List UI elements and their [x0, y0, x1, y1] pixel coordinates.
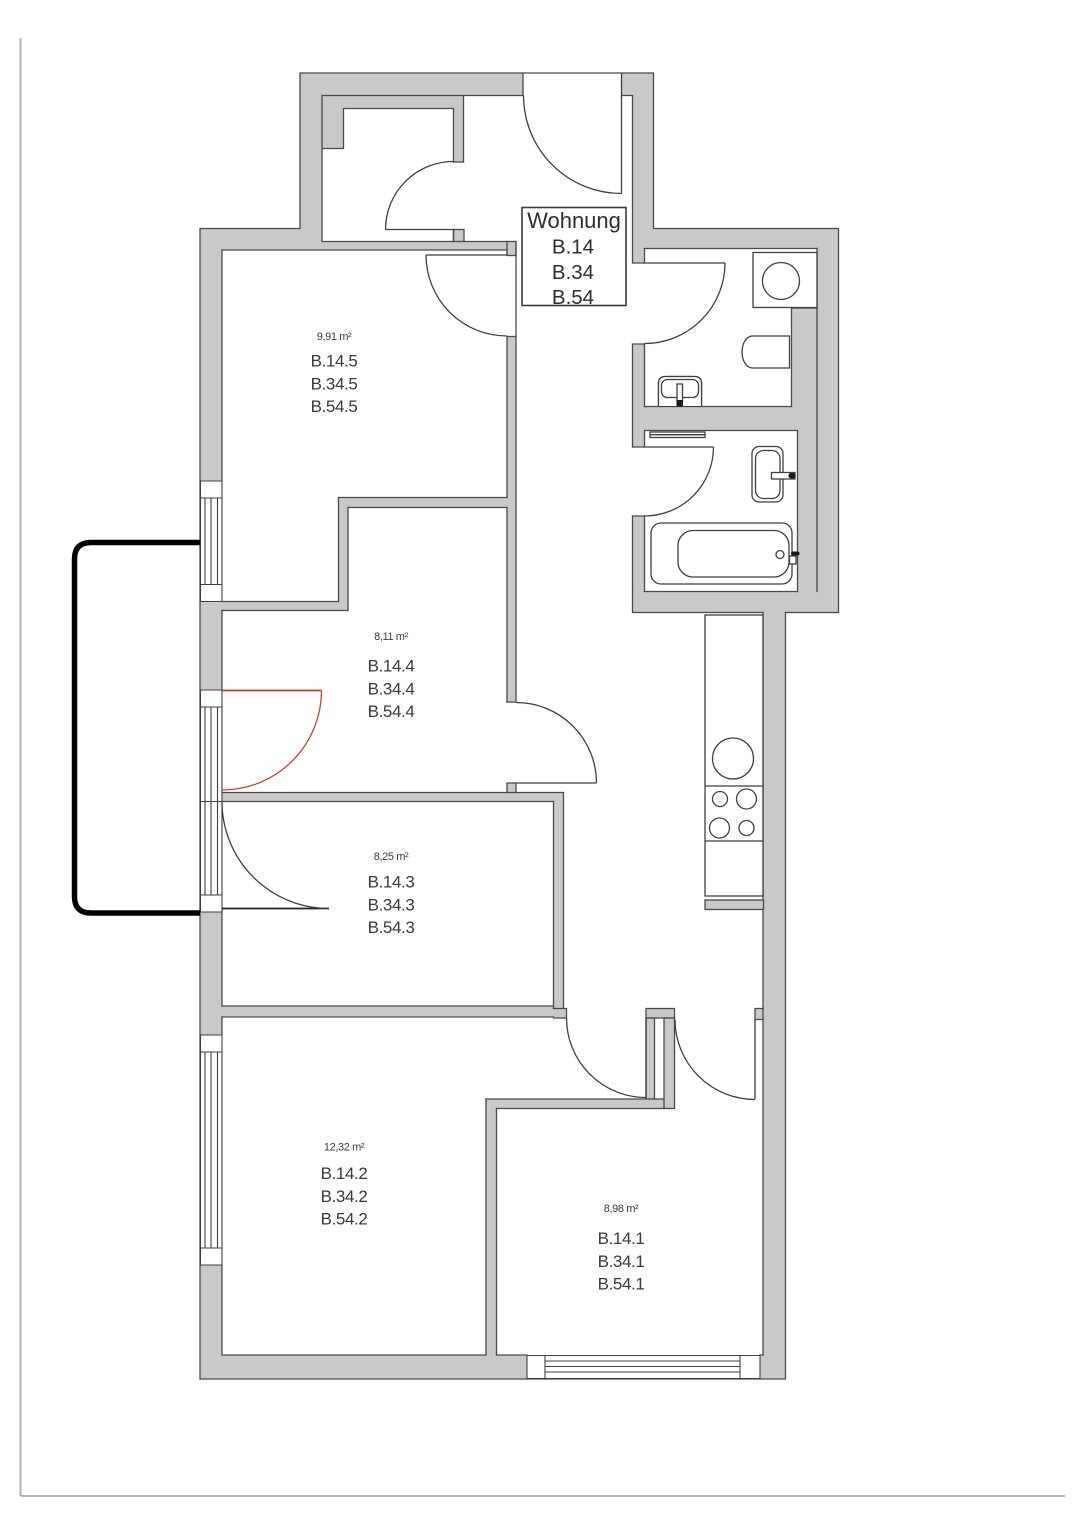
svg-text:B.34.5: B.34.5 — [311, 374, 358, 393]
svg-text:B.54.1: B.54.1 — [598, 1275, 645, 1294]
svg-text:B.34.3: B.34.3 — [368, 895, 415, 914]
svg-text:12,32 m²: 12,32 m² — [324, 1142, 365, 1154]
svg-text:B.54.2: B.54.2 — [321, 1210, 368, 1229]
svg-text:B.54: B.54 — [552, 286, 594, 309]
svg-text:B.54.3: B.54.3 — [368, 918, 415, 937]
svg-text:8,11 m²: 8,11 m² — [374, 631, 408, 643]
svg-text:B.14.1: B.14.1 — [598, 1229, 645, 1248]
svg-text:Wohnung: Wohnung — [527, 208, 621, 233]
svg-text:B.54.4: B.54.4 — [368, 702, 415, 721]
svg-text:B.14.4: B.14.4 — [368, 657, 415, 676]
svg-text:B.34.4: B.34.4 — [368, 679, 415, 698]
svg-text:B.14.2: B.14.2 — [321, 1164, 368, 1183]
svg-text:B.54.5: B.54.5 — [311, 397, 358, 416]
svg-text:B.34.1: B.34.1 — [598, 1252, 645, 1271]
svg-text:B.14.5: B.14.5 — [311, 352, 358, 371]
svg-text:B.34: B.34 — [552, 261, 594, 284]
svg-text:B.14.3: B.14.3 — [368, 873, 415, 892]
svg-text:B.34.2: B.34.2 — [321, 1187, 368, 1206]
svg-text:8,25 m²: 8,25 m² — [374, 851, 409, 863]
svg-text:8,98 m²: 8,98 m² — [604, 1203, 639, 1215]
svg-text:9,91 m²: 9,91 m² — [317, 331, 352, 343]
svg-text:B.14: B.14 — [552, 236, 594, 259]
